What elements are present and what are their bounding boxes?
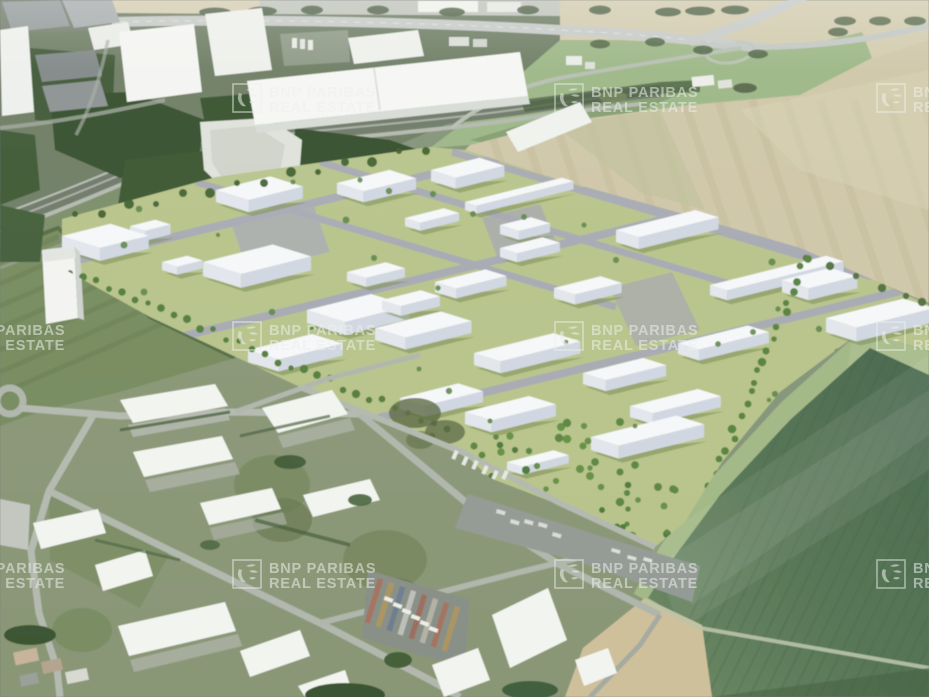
svg-text:BNP PARIBAS: BNP PARIBAS <box>269 561 376 577</box>
svg-text:REAL ESTATE: REAL ESTATE <box>269 338 376 354</box>
svg-text:BNP PARIBAS: BNP PARIBAS <box>0 323 65 339</box>
svg-text:REAL ESTATE: REAL ESTATE <box>269 576 376 592</box>
svg-text:REAL ESTATE: REAL ESTATE <box>913 338 929 354</box>
svg-text:BNP PARIBAS: BNP PARIBAS <box>913 323 929 339</box>
svg-text:BNP PARIBAS: BNP PARIBAS <box>913 561 929 577</box>
svg-text:BNP PARIBAS: BNP PARIBAS <box>269 85 376 101</box>
svg-text:BNP PARIBAS: BNP PARIBAS <box>0 561 65 577</box>
svg-text:REAL ESTATE: REAL ESTATE <box>591 338 698 354</box>
svg-text:BNP PARIBAS: BNP PARIBAS <box>913 85 929 101</box>
svg-text:BNP PARIBAS: BNP PARIBAS <box>591 561 698 577</box>
svg-text:BNP PARIBAS: BNP PARIBAS <box>591 85 698 101</box>
svg-text:BNP PARIBAS: BNP PARIBAS <box>269 323 376 339</box>
svg-text:REAL ESTATE: REAL ESTATE <box>0 576 65 592</box>
svg-text:REAL ESTATE: REAL ESTATE <box>591 576 698 592</box>
svg-text:REAL ESTATE: REAL ESTATE <box>0 338 65 354</box>
svg-text:REAL ESTATE: REAL ESTATE <box>913 576 929 592</box>
svg-text:REAL ESTATE: REAL ESTATE <box>591 100 698 116</box>
svg-text:REAL ESTATE: REAL ESTATE <box>913 100 929 116</box>
svg-text:BNP PARIBAS: BNP PARIBAS <box>591 323 698 339</box>
svg-text:REAL ESTATE: REAL ESTATE <box>269 100 376 116</box>
